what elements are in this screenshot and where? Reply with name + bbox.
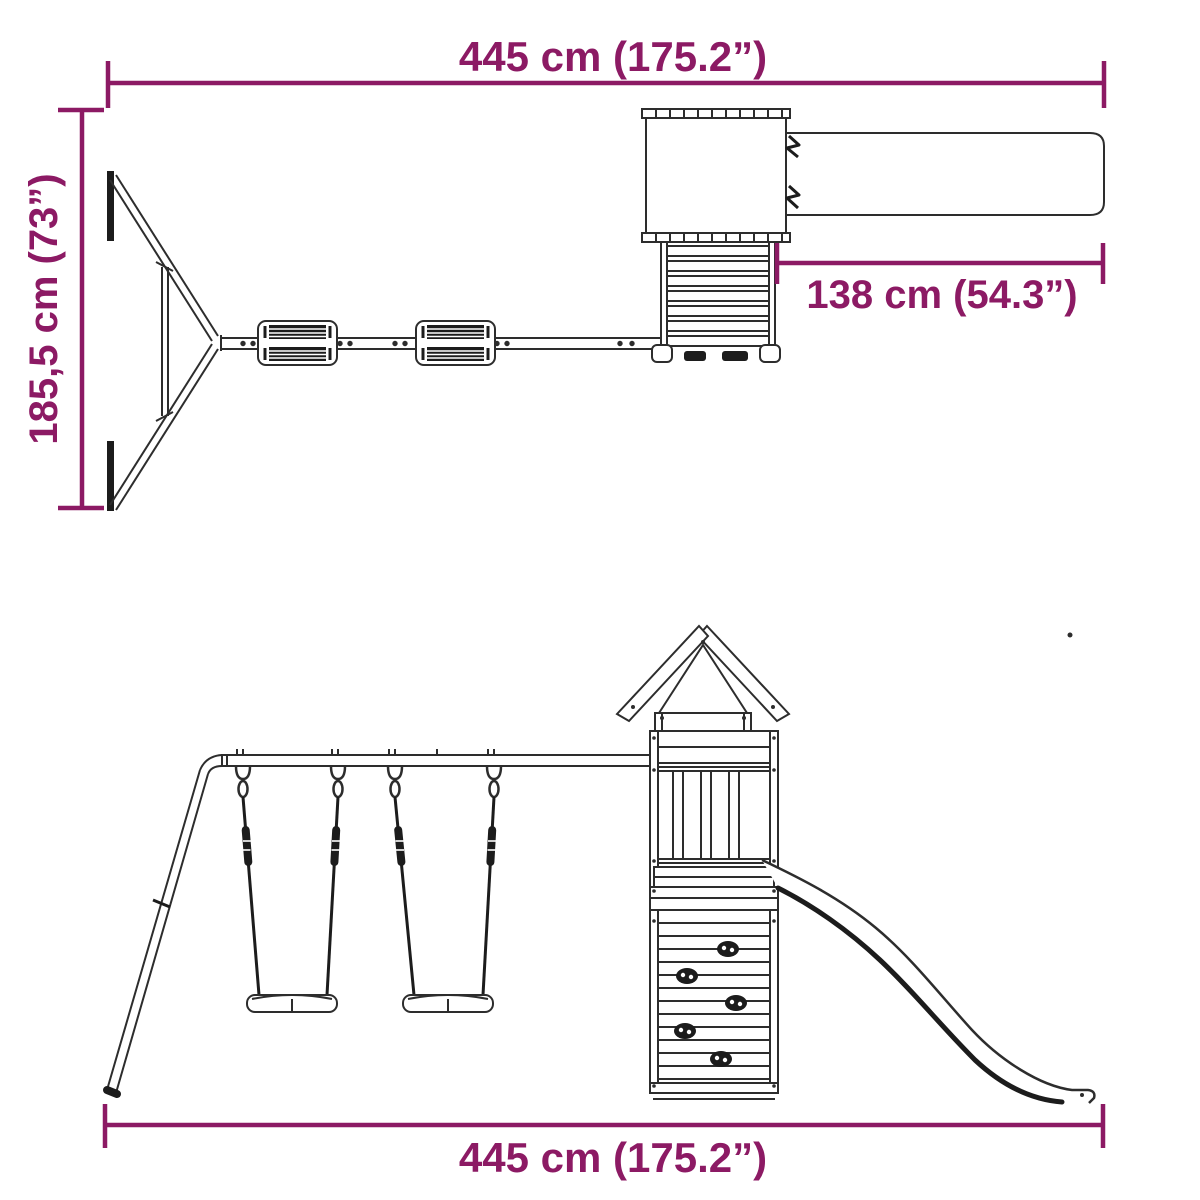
tower-side bbox=[617, 626, 789, 1099]
tower-foot bbox=[652, 345, 672, 362]
swing-hanger bbox=[487, 766, 501, 779]
dim-total-width-bottom: 445 cm (175.2”) bbox=[105, 1104, 1103, 1181]
tower-post-left bbox=[650, 731, 658, 1093]
swing-hanger bbox=[331, 766, 345, 779]
dim-label-slide-length: 138 cm (54.3”) bbox=[806, 273, 1077, 317]
climbing-wall-plan bbox=[652, 242, 780, 362]
slide-side bbox=[762, 860, 1094, 1103]
top-view: 445 cm (175.2”) 185,5 cm (73”) bbox=[22, 33, 1104, 511]
swing-hanger bbox=[388, 766, 402, 779]
climbing-holds bbox=[674, 941, 747, 1067]
slide-plan bbox=[786, 133, 1104, 215]
tower-foot bbox=[760, 345, 780, 362]
rope-adjuster bbox=[334, 830, 336, 862]
speck bbox=[1068, 633, 1073, 638]
rope-adjuster bbox=[398, 830, 401, 862]
anchor-bracket bbox=[684, 351, 706, 361]
baluster bbox=[729, 771, 739, 859]
baluster bbox=[701, 771, 711, 859]
rope-adjuster bbox=[246, 830, 249, 862]
baluster bbox=[673, 771, 683, 859]
tower-roof-plan bbox=[642, 109, 790, 242]
playset-dimension-diagram: 445 cm (175.2”) 185,5 cm (73”) bbox=[0, 0, 1200, 1200]
dim-total-width-top: 445 cm (175.2”) bbox=[108, 33, 1104, 108]
swing-seat-plan bbox=[416, 321, 495, 365]
swing-frame-side bbox=[107, 749, 658, 1094]
tower-base bbox=[650, 1083, 778, 1093]
swing-side bbox=[395, 797, 496, 1012]
dim-label-total-width-top: 445 cm (175.2”) bbox=[459, 33, 767, 80]
dimension-diagram-page: 445 cm (175.2”) 185,5 cm (73”) bbox=[0, 0, 1200, 1200]
anchor-bracket bbox=[722, 351, 748, 361]
swing-side bbox=[243, 797, 341, 1012]
leg-foot bbox=[107, 1090, 117, 1094]
dim-total-depth-left: 185,5 cm (73”) bbox=[22, 110, 104, 508]
rope-adjuster bbox=[490, 830, 492, 862]
swing-seat-plan bbox=[258, 321, 337, 365]
dim-label-total-width-bottom: 445 cm (175.2”) bbox=[459, 1134, 767, 1181]
swing-a-frame-plan bbox=[107, 171, 221, 511]
dim-label-total-depth-left: 185,5 cm (73”) bbox=[22, 173, 66, 444]
dim-slide-length: 138 cm (54.3”) bbox=[777, 243, 1103, 317]
side-view: 445 cm (175.2”) bbox=[105, 626, 1103, 1181]
tower-post-right bbox=[770, 731, 778, 1093]
swing-hanger bbox=[236, 766, 250, 779]
